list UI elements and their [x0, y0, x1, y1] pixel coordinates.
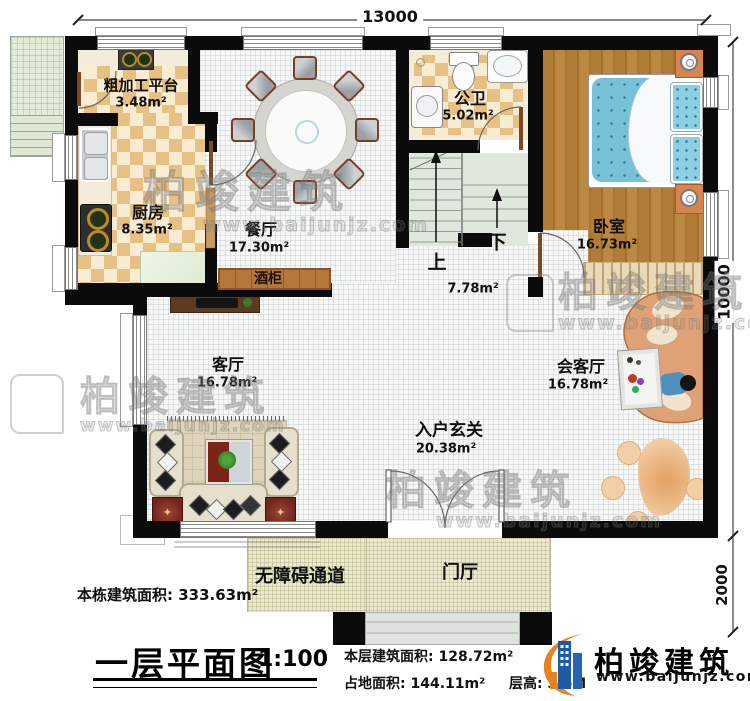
coffee-table-plant — [218, 451, 236, 469]
prep-stove-burner — [122, 52, 137, 67]
dining-chair — [293, 180, 317, 204]
room-label-kitchen: 厨房 — [132, 205, 164, 221]
toilet-bowl — [452, 62, 475, 91]
floor-area-line: 本层建筑面积: 128.72m² — [344, 646, 513, 666]
kitchen-green-counter — [140, 251, 210, 286]
room-label-ramp: 无障碍通道 — [255, 568, 345, 586]
room-label-bedroom: 卧室 — [593, 219, 625, 235]
room-label-foyer: 入户玄关 — [415, 423, 483, 440]
window-top-2 — [243, 36, 363, 50]
stove-burner — [87, 208, 109, 230]
dining-table-center — [295, 120, 319, 144]
wall-bath-bottom — [396, 140, 480, 153]
floor-height-label: 层高: — [509, 676, 543, 692]
room-area-foyer: 20.38m² — [416, 443, 476, 456]
window-left-kitchen-2 — [65, 247, 78, 290]
table-flowers — [632, 386, 639, 393]
room-area-reception: 16.78m² — [548, 379, 608, 392]
table-item — [627, 357, 633, 363]
footprint-line: 占地面积: 144.11m² 层高: 3.6M — [344, 673, 586, 693]
prep-stove-burner — [137, 52, 152, 67]
bedroom-curtain-rug — [583, 262, 705, 295]
title-underline — [93, 678, 317, 688]
dining-chair — [355, 118, 379, 142]
table-flowers — [628, 374, 637, 383]
window-left-kitchen-1 — [65, 135, 78, 180]
dim-top-width: 13000 — [357, 9, 423, 25]
floor-area-value: 128.72m² — [438, 649, 513, 665]
dining-chair — [293, 56, 317, 80]
table-flowers — [637, 378, 644, 385]
room-label-rough-platform: 粗加工平台 — [103, 79, 178, 94]
window-right-2 — [703, 192, 718, 257]
dim-right-height: 10000 — [715, 261, 734, 323]
room-area-bathroom: 5.02m² — [442, 110, 493, 123]
porch-steps — [365, 612, 520, 645]
window-sill — [120, 313, 133, 427]
room-area-living: 16.78m² — [197, 377, 257, 390]
building-total-area: 本栋建筑面积: 333.63m² — [77, 584, 258, 605]
nightstand-lamp — [680, 189, 698, 207]
floor-area-label: 本层建筑面积: — [344, 649, 434, 665]
wall-kitchen-dining-mid — [205, 124, 217, 152]
rug-dot — [617, 441, 641, 465]
window-sill — [95, 27, 187, 36]
window-sill — [52, 245, 65, 292]
room-area-dining: 17.30m² — [229, 242, 289, 255]
window-sill — [428, 27, 504, 36]
window-living-bottom — [180, 521, 316, 538]
window-top-1 — [97, 36, 185, 50]
stove-burner — [87, 230, 109, 252]
room-label-porch: 门厅 — [442, 564, 478, 582]
wall-kitchen-dining-upper — [188, 36, 200, 118]
bed-pillow — [671, 135, 702, 183]
stair-area-label: 7.78m² — [447, 283, 498, 296]
nightstand-lamp — [680, 53, 698, 71]
room-label-living: 客厅 — [212, 357, 244, 373]
stair-up-label: 上 — [427, 254, 446, 273]
building-total-value: 333.63m² — [178, 586, 258, 604]
footprint-value: 144.11m² — [410, 676, 485, 692]
footprint-label: 占地面积: — [344, 676, 406, 692]
rug-dot — [601, 476, 625, 500]
wine-cabinet-label: 酒柜 — [254, 272, 282, 286]
kitchen-sink-basin — [84, 157, 108, 180]
porch-pillar — [333, 612, 365, 645]
room-label-reception: 会客厅 — [557, 359, 605, 375]
porch-pillar — [520, 612, 552, 645]
cabinet-plant — [243, 298, 252, 307]
carpet-fringe — [167, 416, 285, 421]
brand-website: www.baijunjz.com — [596, 669, 750, 685]
floor-height-value: 3.6M — [547, 676, 586, 692]
window-sill — [718, 190, 729, 259]
window-top-3 — [430, 36, 502, 50]
washer-drum — [416, 95, 438, 117]
room-label-bathroom: 公卫 — [454, 91, 486, 107]
building-total-label: 本栋建筑面积: — [77, 586, 173, 604]
wall-bath-bedroom — [528, 36, 543, 232]
corner-sill-box — [697, 24, 731, 36]
entry-door-opening — [388, 521, 502, 538]
room-area-kitchen: 8.35m² — [121, 224, 172, 237]
watermark-logo-icon — [506, 274, 554, 332]
dim-porch-depth: 2000 — [713, 561, 731, 609]
kitchen-sink-basin — [84, 132, 108, 155]
window-living-left — [133, 315, 147, 425]
wall-kitchen-dining-lower — [205, 224, 217, 290]
bed-pillow — [671, 83, 702, 131]
window-sill — [52, 133, 65, 182]
bathroom-sink-basin — [493, 55, 522, 77]
drawing-scale: 1:100 — [258, 647, 328, 672]
wall-rough-kitchen — [65, 113, 118, 126]
tv-set — [196, 298, 238, 308]
room-area-bedroom: 16.73m² — [577, 239, 637, 252]
room-area-rough-platform: 3.48m² — [115, 97, 166, 110]
watermark-logo-icon — [10, 374, 64, 434]
table-item — [636, 360, 641, 365]
window-right-1 — [703, 77, 718, 108]
wall-kitchen-dining-jog — [188, 112, 218, 124]
window-sill — [241, 27, 365, 36]
towel-hook — [416, 58, 425, 67]
stair-down-label: 下 — [487, 234, 506, 253]
room-label-dining: 餐厅 — [245, 222, 277, 238]
window-sill — [718, 75, 729, 110]
dining-chair — [231, 118, 255, 142]
floor-plan-canvas: ✦ ✦ 酒柜 — [0, 0, 750, 701]
